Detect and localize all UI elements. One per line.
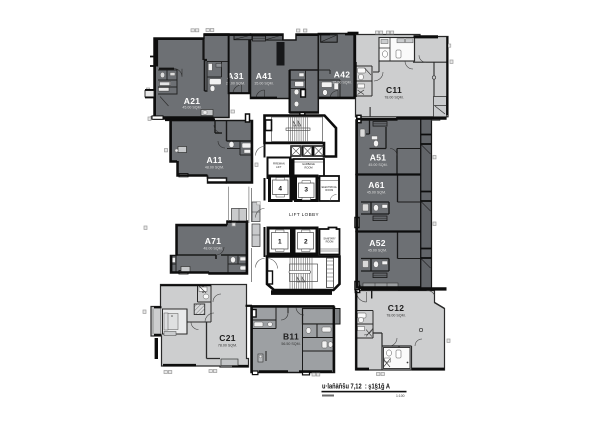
svg-text:A21: A21 bbox=[184, 96, 201, 106]
svg-text:45.00 SQM.: 45.00 SQM. bbox=[368, 163, 387, 167]
svg-text:A71: A71 bbox=[205, 236, 222, 246]
svg-text:78.00 SQM.: 78.00 SQM. bbox=[386, 314, 405, 318]
svg-text:C21: C21 bbox=[219, 333, 236, 343]
svg-text:A41: A41 bbox=[256, 71, 273, 81]
svg-text:u·laňäňšu 7,12 : ş1§1ğ A: u·laňäňšu 7,12 : ş1§1ğ A bbox=[322, 384, 390, 391]
svg-text:78.00 SQM.: 78.00 SQM. bbox=[384, 96, 403, 100]
svg-text:35.00 SQM.: 35.00 SQM. bbox=[332, 81, 351, 85]
svg-text:3: 3 bbox=[304, 186, 308, 193]
svg-text:ROOM: ROOM bbox=[325, 189, 333, 192]
svg-text:B11: B11 bbox=[283, 332, 299, 342]
svg-text:35.00 SQM.: 35.00 SQM. bbox=[254, 82, 273, 86]
svg-text:ROOM: ROOM bbox=[326, 241, 334, 244]
svg-text:2: 2 bbox=[304, 239, 308, 246]
svg-text:1:100: 1:100 bbox=[396, 394, 405, 398]
svg-text:45.00 SQM.: 45.00 SQM. bbox=[367, 191, 386, 195]
svg-text:A31: A31 bbox=[227, 71, 244, 81]
svg-text:A11: A11 bbox=[206, 155, 222, 165]
svg-text:56.50 SQM.: 56.50 SQM. bbox=[281, 342, 300, 346]
svg-text:LIFT LOBBY: LIFT LOBBY bbox=[289, 212, 319, 217]
svg-text:A52: A52 bbox=[369, 238, 386, 248]
svg-text:ROOM: ROOM bbox=[304, 165, 312, 169]
svg-text:48.00 SQM.: 48.00 SQM. bbox=[205, 166, 224, 170]
svg-text:A42: A42 bbox=[334, 70, 351, 80]
svg-text:45.00 SQM.: 45.00 SQM. bbox=[182, 106, 201, 110]
svg-text:LIFT: LIFT bbox=[276, 165, 282, 169]
svg-text:45.00 SQM.: 45.00 SQM. bbox=[368, 249, 387, 253]
svg-text:1: 1 bbox=[278, 239, 282, 246]
svg-text:C11: C11 bbox=[386, 85, 402, 95]
svg-text:A61: A61 bbox=[368, 180, 385, 190]
svg-text:48.00 SQM.: 48.00 SQM. bbox=[203, 247, 222, 251]
svg-text:C12: C12 bbox=[388, 303, 405, 313]
svg-text:4: 4 bbox=[278, 185, 282, 192]
svg-text:78.00 SQM.: 78.00 SQM. bbox=[218, 344, 237, 348]
svg-text:A51: A51 bbox=[370, 153, 387, 163]
